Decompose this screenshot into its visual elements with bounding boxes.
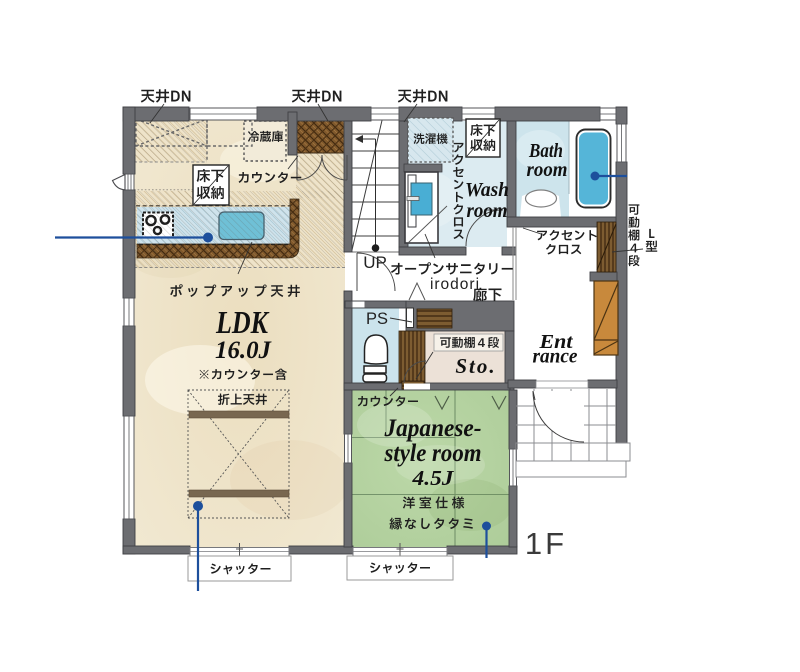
svg-text:UP: UP — [363, 253, 387, 272]
svg-text:room: room — [527, 159, 568, 181]
svg-text:Sto.: Sto. — [455, 354, 496, 378]
svg-text:Wash: Wash — [465, 179, 509, 201]
svg-text:PS: PS — [366, 310, 388, 328]
svg-text:16.0J: 16.0J — [215, 337, 272, 364]
svg-text:irodori: irodori — [430, 276, 480, 293]
svg-text:rance: rance — [533, 346, 578, 368]
svg-text:4.5J: 4.5J — [411, 466, 455, 490]
svg-text:LDK: LDK — [215, 304, 270, 340]
svg-text:1F: 1F — [525, 526, 567, 561]
svg-text:room: room — [467, 200, 508, 222]
svg-text:Japanese-: Japanese- — [384, 415, 482, 442]
svg-text:style room: style room — [384, 440, 482, 467]
